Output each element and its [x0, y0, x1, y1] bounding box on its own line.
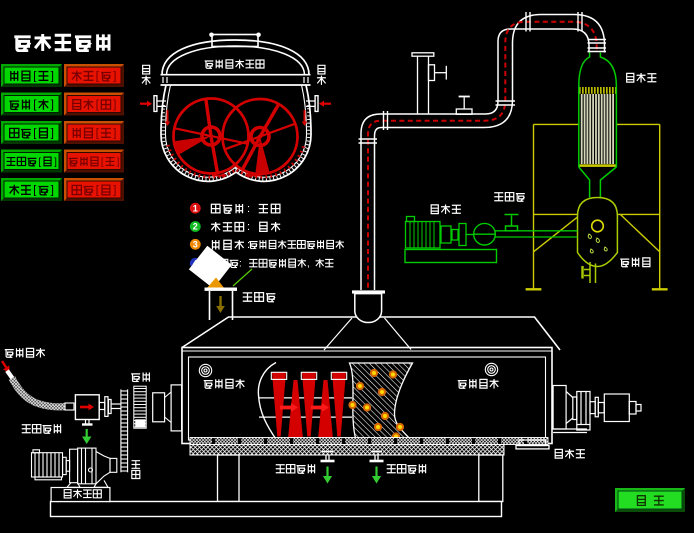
svg-text::: : [247, 203, 250, 215]
svg-text:3: 3 [193, 240, 198, 250]
svg-text::: : [239, 258, 242, 269]
svg-text:]: ] [117, 157, 120, 168]
svg-text:]: ] [54, 157, 57, 168]
svg-text:]: ] [51, 126, 54, 140]
svg-text::: : [247, 221, 250, 233]
svg-text:]: ] [113, 69, 116, 83]
svg-text::: : [247, 239, 250, 251]
svg-text:2: 2 [193, 222, 198, 232]
svg-text:,: , [307, 258, 310, 269]
svg-text:[: [ [38, 157, 41, 168]
svg-text:1: 1 [193, 203, 198, 213]
svg-text:[: [ [101, 157, 104, 168]
svg-text:]: ] [113, 126, 116, 140]
svg-text:]: ] [113, 97, 116, 111]
svg-text:]: ] [113, 183, 116, 197]
svg-text:]: ] [51, 69, 54, 83]
svg-text:]: ] [51, 97, 54, 111]
svg-text:]: ] [51, 183, 54, 197]
